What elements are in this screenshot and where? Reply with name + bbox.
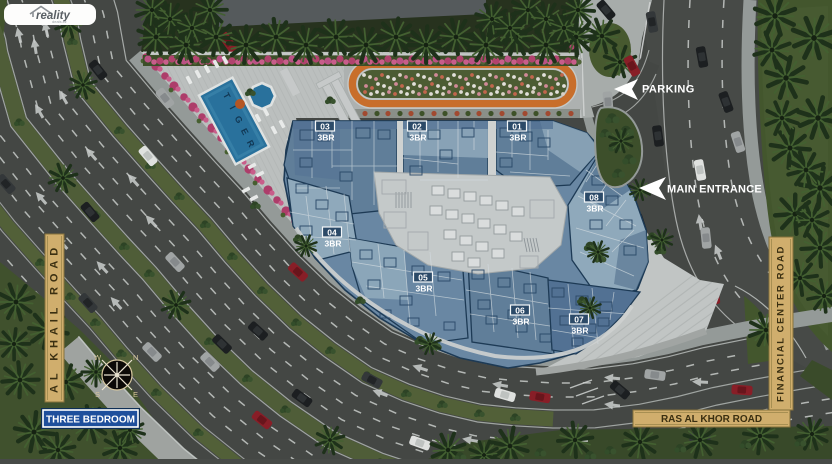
svg-text:3BR: 3BR xyxy=(509,133,526,143)
svg-text:S: S xyxy=(95,390,100,399)
svg-text:PARKING: PARKING xyxy=(642,84,695,96)
svg-text:3BR: 3BR xyxy=(324,239,341,249)
svg-text:3BR: 3BR xyxy=(409,133,426,143)
svg-text:3BR: 3BR xyxy=(415,284,432,294)
svg-text:FINANCIAL CENTER ROAD: FINANCIAL CENTER ROAD xyxy=(776,245,787,402)
svg-text:deals.cz: deals.cz xyxy=(52,19,67,24)
svg-text:07: 07 xyxy=(574,314,584,324)
svg-text:3BR: 3BR xyxy=(586,204,603,214)
svg-text:05: 05 xyxy=(418,272,428,282)
svg-text:E: E xyxy=(133,390,138,399)
svg-text:02: 02 xyxy=(412,121,422,131)
svg-text:03: 03 xyxy=(320,121,330,131)
svg-text:08: 08 xyxy=(589,192,599,202)
svg-text:N: N xyxy=(133,353,138,362)
svg-text:06: 06 xyxy=(515,305,525,315)
svg-text:04: 04 xyxy=(327,227,337,237)
svg-text:3BR: 3BR xyxy=(317,133,334,143)
svg-text:W: W xyxy=(94,353,102,362)
svg-text:THREE BEDROOM: THREE BEDROOM xyxy=(46,415,135,426)
svg-text:3BR: 3BR xyxy=(571,326,588,336)
svg-text:AL KHAIL ROAD: AL KHAIL ROAD xyxy=(49,243,61,393)
svg-text:RAS AL KHOR ROAD: RAS AL KHOR ROAD xyxy=(661,414,762,425)
svg-text:3BR: 3BR xyxy=(512,317,529,327)
svg-text:MAIN ENTRANCE: MAIN ENTRANCE xyxy=(667,184,762,196)
svg-text:01: 01 xyxy=(512,121,522,131)
